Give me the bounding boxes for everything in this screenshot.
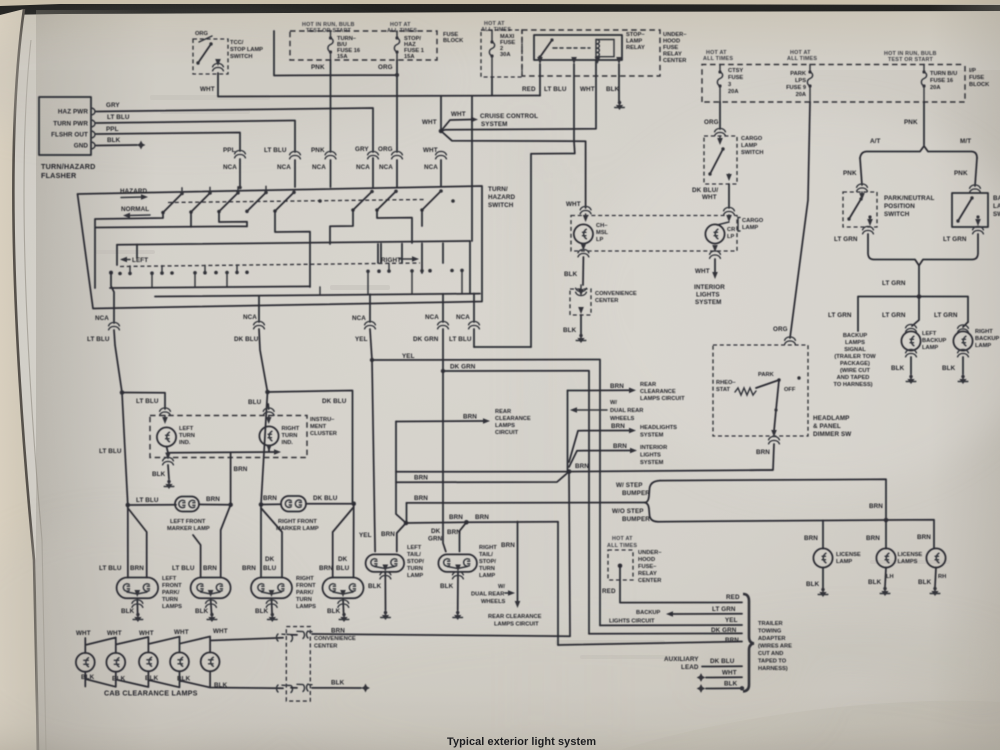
svg-text:BA: BA — [993, 195, 1000, 202]
svg-text:RIGHT: RIGHT — [282, 426, 300, 432]
svg-text:CIRCUIT: CIRCUIT — [495, 430, 519, 436]
svg-text:I/P: I/P — [969, 68, 976, 74]
svg-text:RH: RH — [938, 574, 946, 580]
svg-text:LAMPS CIRCUIT: LAMPS CIRCUIT — [494, 622, 539, 628]
svg-text:BLK: BLK — [327, 608, 341, 615]
svg-text:FUSE 9: FUSE 9 — [786, 85, 806, 91]
svg-text:LT BLU: LT BLU — [87, 336, 110, 343]
svg-text:15A: 15A — [404, 54, 414, 60]
svg-text:RIGHT: RIGHT — [381, 257, 401, 264]
svg-text:LT GRN: LT GRN — [943, 236, 967, 243]
svg-text:WHT: WHT — [213, 628, 228, 635]
svg-text:LT BLU: LT BLU — [136, 497, 159, 504]
svg-text:BLK: BLK — [606, 86, 620, 93]
svg-text:FUSE: FUSE — [728, 75, 743, 81]
svg-text:TURN: TURN — [479, 566, 495, 572]
svg-text:LAMP: LAMP — [626, 39, 642, 45]
svg-text:NCA: NCA — [312, 164, 326, 171]
svg-text:TRAILER: TRAILER — [758, 621, 783, 627]
svg-text:CRUISE CONTROL: CRUISE CONTROL — [480, 113, 538, 120]
svg-text:TAIL/: TAIL/ — [407, 552, 421, 558]
svg-text:YEL: YEL — [402, 353, 415, 360]
svg-text:20A: 20A — [930, 85, 940, 91]
svg-text:WHT: WHT — [76, 630, 91, 637]
svg-text:PARK/: PARK/ — [162, 590, 180, 596]
svg-text:BRN: BRN — [203, 565, 217, 572]
svg-text:FRONT: FRONT — [162, 583, 182, 589]
svg-text:LAMP: LAMP — [975, 343, 991, 349]
svg-text:DK: DK — [338, 556, 348, 563]
svg-text:M/T: M/T — [960, 138, 971, 145]
svg-text:FLSHR OUT: FLSHR OUT — [51, 132, 88, 139]
svg-text:LAMPS: LAMPS — [495, 423, 515, 429]
svg-text:PNK: PNK — [904, 119, 918, 126]
svg-text:LEFT: LEFT — [162, 576, 177, 582]
svg-text:STAT: STAT — [716, 387, 731, 393]
svg-text:BRN: BRN — [725, 637, 739, 644]
svg-text:Typical exterior light system: Typical exterior light system — [447, 736, 596, 748]
svg-text:LICENSE: LICENSE — [898, 552, 923, 558]
svg-text:BLK: BLK — [724, 681, 738, 688]
svg-text:LT BLU: LT BLU — [99, 448, 122, 455]
svg-text:AND TAPED: AND TAPED — [837, 375, 870, 381]
svg-text:HARNESS): HARNESS) — [758, 666, 788, 672]
svg-text:LT GRN: LT GRN — [882, 312, 906, 319]
svg-text:NCA: NCA — [277, 164, 291, 171]
svg-text:WHT: WHT — [423, 147, 438, 154]
svg-text:OFF: OFF — [784, 387, 796, 393]
svg-text:CLEARANCE: CLEARANCE — [495, 416, 531, 422]
svg-text:HAZARD: HAZARD — [488, 194, 516, 201]
svg-text:WHEELS: WHEELS — [481, 599, 506, 605]
svg-text:DK: DK — [265, 556, 275, 563]
svg-text:WHT: WHT — [580, 86, 595, 93]
svg-text:LAMPS: LAMPS — [296, 604, 316, 610]
svg-text:STOP/: STOP/ — [407, 559, 424, 565]
svg-text:RIGHT FRONT: RIGHT FRONT — [278, 519, 317, 525]
svg-text:BLOCK: BLOCK — [969, 82, 990, 88]
svg-text:15A: 15A — [337, 54, 347, 60]
svg-text:NCA: NCA — [379, 164, 393, 171]
svg-text:DK GRN: DK GRN — [450, 364, 476, 371]
svg-text:SYSTEM: SYSTEM — [640, 460, 664, 466]
svg-text:LT BLU: LT BLU — [264, 147, 287, 154]
svg-text:CUT AND: CUT AND — [758, 651, 783, 657]
svg-text:NCA: NCA — [352, 315, 366, 322]
svg-text:BRN: BRN — [613, 443, 627, 450]
svg-text:WHT: WHT — [702, 194, 717, 201]
svg-text:BRN: BRN — [414, 475, 428, 482]
svg-text:LH: LH — [886, 574, 894, 580]
svg-text:HOOD: HOOD — [638, 557, 655, 563]
svg-text:PARK: PARK — [790, 71, 807, 77]
svg-text:LEFT: LEFT — [922, 331, 937, 337]
svg-text:TEST OR START: TEST OR START — [888, 57, 934, 63]
svg-text:LAMPS: LAMPS — [162, 604, 182, 610]
svg-text:BACKUP: BACKUP — [843, 333, 868, 339]
svg-text:BRN: BRN — [463, 414, 477, 421]
svg-text:LAMP: LAMP — [741, 143, 757, 149]
svg-text:W/ STEP: W/ STEP — [616, 482, 643, 489]
svg-text:SWITCH: SWITCH — [741, 150, 763, 156]
svg-text:BRN: BRN — [381, 531, 395, 538]
svg-text:REAR: REAR — [640, 382, 656, 388]
svg-text:CARGO: CARGO — [741, 136, 763, 142]
svg-text:BLK: BLK — [891, 365, 905, 372]
svg-text:RIGHT: RIGHT — [975, 329, 993, 335]
svg-text:LAMPS: LAMPS — [845, 340, 865, 346]
svg-text:PNK: PNK — [954, 170, 968, 177]
svg-text:RED: RED — [522, 86, 536, 93]
svg-text:TURN: TURN — [296, 597, 312, 603]
svg-text:BRN: BRN — [130, 565, 144, 572]
svg-text:20A: 20A — [728, 89, 738, 95]
svg-text:WHT: WHT — [695, 268, 710, 275]
svg-text:W/O STEP: W/O STEP — [612, 508, 644, 515]
svg-text:BLK: BLK — [942, 365, 956, 372]
svg-text:BRN: BRN — [242, 565, 256, 572]
svg-text:ORG: ORG — [378, 146, 393, 153]
svg-text:FUSE 16: FUSE 16 — [930, 78, 953, 84]
svg-text:BLK: BLK — [564, 271, 578, 278]
svg-text:SWITCH: SWITCH — [488, 202, 514, 209]
svg-text:LAMP: LAMP — [479, 573, 495, 579]
svg-text:BRN: BRN — [866, 535, 880, 542]
svg-text:BLK: BLK — [152, 471, 166, 478]
svg-text:HEADLAMP: HEADLAMP — [813, 415, 849, 422]
svg-text:NCA: NCA — [424, 164, 438, 171]
svg-text:W/: W/ — [498, 584, 505, 590]
svg-text:RHEO–: RHEO– — [716, 380, 736, 386]
svg-text:BUMPER: BUMPER — [622, 516, 650, 523]
svg-text:NORMAL: NORMAL — [121, 206, 149, 213]
svg-text:WHT: WHT — [107, 630, 122, 637]
svg-text:LT BLU: LT BLU — [172, 565, 195, 572]
svg-text:RIGHT: RIGHT — [296, 576, 314, 582]
svg-text:DK BLU: DK BLU — [313, 495, 338, 502]
svg-text:SWITCH: SWITCH — [230, 54, 252, 60]
svg-text:PNK: PNK — [843, 170, 857, 177]
svg-text:LT BLU: LT BLU — [136, 398, 159, 405]
svg-text:DK BLU: DK BLU — [322, 398, 347, 405]
svg-text:BLU: BLU — [336, 565, 350, 572]
svg-text:CONVENIENCE: CONVENIENCE — [595, 291, 637, 297]
svg-text:BLK: BLK — [255, 608, 269, 615]
svg-text:20A: 20A — [796, 92, 806, 98]
svg-text:30A: 30A — [500, 52, 510, 58]
svg-text:GRN: GRN — [428, 536, 443, 543]
svg-text:MARKER LAMP: MARKER LAMP — [167, 526, 210, 532]
svg-text:TURN PWR: TURN PWR — [53, 121, 88, 128]
svg-text:LT GRN: LT GRN — [882, 280, 906, 287]
svg-text:RED: RED — [602, 588, 616, 595]
svg-text:& PANEL: & PANEL — [813, 423, 841, 430]
svg-text:LIGHTS: LIGHTS — [640, 453, 661, 459]
svg-text:IND.: IND. — [282, 440, 294, 446]
svg-text:TOWING: TOWING — [758, 629, 782, 635]
svg-text:LEFT: LEFT — [179, 426, 194, 432]
svg-text:LP: LP — [596, 237, 603, 243]
svg-text:ORG: ORG — [195, 31, 209, 37]
svg-text:NCA: NCA — [425, 314, 439, 321]
svg-text:BACKUP: BACKUP — [975, 336, 1000, 342]
svg-text:LAMP: LAMP — [407, 573, 423, 579]
svg-text:LICENSE: LICENSE — [836, 552, 861, 558]
svg-text:BRN: BRN — [804, 535, 818, 542]
svg-text:LT BLU: LT BLU — [99, 565, 122, 572]
svg-text:LIGHTS CIRCUIT: LIGHTS CIRCUIT — [609, 619, 655, 625]
svg-text:W/: W/ — [610, 400, 617, 406]
svg-text:PPL: PPL — [106, 126, 119, 133]
svg-text:NCA: NCA — [95, 315, 109, 322]
svg-text:ORG: ORG — [773, 326, 788, 333]
svg-text:LT BLU: LT BLU — [544, 86, 567, 93]
svg-text:ALL TIMES: ALL TIMES — [607, 543, 637, 549]
svg-text:DUAL REAR: DUAL REAR — [610, 408, 643, 414]
svg-text:WHEELS: WHEELS — [610, 416, 635, 422]
svg-text:UNDER–: UNDER– — [663, 32, 686, 38]
svg-text:ALL TIMES: ALL TIMES — [787, 56, 817, 62]
svg-text:CENTER: CENTER — [638, 578, 661, 584]
svg-text:WHT: WHT — [451, 111, 466, 118]
svg-text:REAR CLEARANCE: REAR CLEARANCE — [488, 614, 542, 620]
svg-text:NCA: NCA — [356, 164, 370, 171]
svg-text:LEFT FRONT: LEFT FRONT — [170, 519, 206, 525]
svg-text:FUSE: FUSE — [969, 75, 984, 81]
svg-text:BRN: BRN — [917, 534, 931, 541]
svg-text:SW: SW — [993, 211, 1000, 218]
svg-text:RED: RED — [726, 594, 740, 601]
svg-text:BACKUP: BACKUP — [636, 610, 661, 616]
svg-text:GRY: GRY — [106, 102, 120, 109]
svg-text:LT GRN: LT GRN — [712, 606, 736, 613]
svg-text:BRN: BRN — [611, 423, 625, 430]
svg-text:BRN: BRN — [414, 495, 428, 502]
svg-text:BLK: BLK — [440, 583, 454, 590]
svg-text:REAR: REAR — [495, 409, 511, 415]
svg-text:PARK: PARK — [758, 372, 775, 378]
svg-text:SYSTEM: SYSTEM — [640, 433, 664, 439]
svg-text:DK: DK — [431, 528, 441, 535]
svg-text:LAMP: LAMP — [836, 559, 852, 565]
svg-text:TAIL/: TAIL/ — [479, 552, 493, 558]
svg-text:WHT: WHT — [200, 86, 215, 93]
svg-text:BRN: BRN — [869, 503, 883, 510]
svg-text:BLK: BLK — [563, 327, 577, 334]
svg-text:TURN: TURN — [282, 433, 298, 439]
svg-text:BLK: BLK — [195, 608, 209, 615]
svg-text:BLK: BLK — [806, 581, 820, 588]
svg-text:TCC/: TCC/ — [230, 40, 244, 46]
svg-text:YEL: YEL — [725, 617, 738, 624]
svg-text:STOP LAMP: STOP LAMP — [230, 47, 263, 53]
svg-text:HAZ PWR: HAZ PWR — [58, 109, 88, 116]
svg-text:PNK: PNK — [311, 147, 325, 154]
svg-text:HEADLIGHTS: HEADLIGHTS — [640, 425, 677, 431]
svg-text:BLK: BLK — [918, 579, 932, 586]
svg-text:PACKAGE): PACKAGE) — [840, 361, 870, 367]
svg-text:(WIRE CUT: (WIRE CUT — [840, 368, 871, 374]
svg-text:INTERIOR: INTERIOR — [694, 284, 725, 291]
svg-text:DK GRN: DK GRN — [413, 336, 439, 343]
svg-text:YEL: YEL — [355, 336, 368, 343]
svg-text:WHT: WHT — [566, 201, 581, 208]
svg-text:BRN: BRN — [206, 496, 220, 503]
svg-text:(WIRES ARE: (WIRES ARE — [758, 644, 792, 650]
svg-text:CTSY: CTSY — [728, 68, 743, 74]
svg-text:BRN: BRN — [610, 383, 624, 390]
svg-text:BRN: BRN — [501, 542, 515, 549]
svg-text:FLASHER: FLASHER — [41, 171, 77, 180]
svg-text:DK BLU/: DK BLU/ — [692, 187, 718, 194]
svg-text:LPS: LPS — [795, 78, 806, 84]
svg-text:HAZARD: HAZARD — [120, 188, 148, 195]
svg-text:PPL: PPL — [223, 147, 236, 154]
svg-text:TURN/HAZARD: TURN/HAZARD — [41, 162, 96, 171]
svg-text:3: 3 — [728, 82, 731, 88]
svg-text:LAMPS: LAMPS — [898, 559, 918, 565]
svg-text:BLK: BLK — [331, 680, 345, 687]
svg-text:IND.: IND. — [179, 440, 191, 446]
svg-text:BLK: BLK — [868, 579, 882, 586]
svg-text:BLOCK: BLOCK — [443, 38, 464, 44]
svg-text:INTERIOR: INTERIOR — [640, 445, 667, 451]
svg-text:RELAY: RELAY — [663, 52, 682, 58]
svg-text:BRN: BRN — [234, 466, 248, 473]
svg-text:TURN B/U: TURN B/U — [930, 71, 957, 77]
svg-text:TURN/: TURN/ — [488, 186, 508, 193]
svg-text:DK BLU: DK BLU — [710, 658, 735, 665]
svg-text:(TRAILER TOW: (TRAILER TOW — [834, 354, 876, 360]
svg-text:BLU: BLU — [263, 565, 277, 572]
svg-text:LAMPS CIRCUIT: LAMPS CIRCUIT — [640, 396, 685, 402]
svg-text:LT GRN: LT GRN — [934, 312, 958, 319]
svg-text:BLK: BLK — [107, 137, 121, 144]
svg-text:A/T: A/T — [870, 138, 880, 145]
svg-text:LAMP: LAMP — [742, 225, 758, 231]
svg-text:TAPED TO: TAPED TO — [758, 659, 787, 665]
svg-text:GND: GND — [74, 143, 89, 150]
svg-text:CENTER: CENTER — [314, 644, 337, 650]
svg-text:CLEARANCE: CLEARANCE — [640, 389, 676, 395]
svg-text:LT BLU: LT BLU — [449, 336, 472, 343]
svg-text:SIGNAL: SIGNAL — [844, 347, 866, 353]
svg-text:BRN: BRN — [756, 449, 770, 456]
svg-text:TO HARNESS): TO HARNESS) — [833, 382, 872, 388]
svg-text:BRN: BRN — [575, 463, 589, 470]
svg-text:SYSTEM: SYSTEM — [695, 299, 722, 306]
svg-text:MENT: MENT — [310, 424, 327, 430]
svg-text:CH–: CH– — [596, 223, 607, 229]
svg-text:RELAY: RELAY — [638, 571, 657, 577]
svg-text:STOP–: STOP– — [626, 32, 645, 38]
svg-text:FUSE: FUSE — [663, 45, 678, 51]
svg-text:LEFT: LEFT — [407, 545, 422, 551]
svg-text:LA: LA — [993, 203, 1000, 210]
svg-text:WHT: WHT — [174, 629, 189, 636]
svg-text:BLK: BLK — [368, 583, 382, 590]
svg-text:CENTER: CENTER — [663, 58, 686, 64]
svg-text:BACKUP: BACKUP — [922, 338, 947, 344]
svg-text:CAB CLEARANCE LAMPS: CAB CLEARANCE LAMPS — [104, 689, 198, 698]
svg-text:DIMMER SW: DIMMER SW — [813, 431, 851, 438]
svg-text:GRY: GRY — [355, 146, 369, 153]
svg-text:TURN: TURN — [407, 566, 423, 572]
svg-text:ADAPTER: ADAPTER — [758, 636, 786, 642]
svg-text:SYSTEM: SYSTEM — [481, 121, 508, 128]
svg-text:RELAY: RELAY — [626, 45, 645, 51]
svg-text:WHT: WHT — [422, 119, 437, 126]
svg-text:FRONT: FRONT — [296, 583, 316, 589]
svg-text:MSL: MSL — [596, 230, 609, 236]
svg-text:LEFT: LEFT — [132, 257, 148, 264]
svg-text:BRN: BRN — [263, 495, 277, 502]
svg-text:TURN: TURN — [179, 433, 195, 439]
svg-text:LT GRN: LT GRN — [828, 312, 852, 319]
svg-text:CARGO: CARGO — [742, 218, 764, 224]
svg-text:YEL: YEL — [359, 532, 372, 539]
svg-text:WHT: WHT — [722, 670, 737, 677]
svg-text:LEAD: LEAD — [681, 664, 699, 671]
svg-text:AUXILIARY: AUXILIARY — [664, 656, 699, 663]
svg-text:WHT: WHT — [139, 630, 154, 637]
svg-text:ORG: ORG — [378, 64, 393, 71]
svg-text:LP: LP — [727, 234, 734, 240]
svg-text:PARK/NEUTRAL: PARK/NEUTRAL — [884, 195, 934, 202]
svg-text:INSTRU–: INSTRU– — [310, 417, 334, 423]
svg-text:DUAL REAR: DUAL REAR — [471, 592, 504, 598]
svg-text:BLU: BLU — [248, 399, 262, 406]
svg-text:CR: CR — [727, 227, 735, 233]
svg-text:LT GRN: LT GRN — [834, 236, 858, 243]
svg-text:CLUSTER: CLUSTER — [310, 431, 337, 437]
svg-text:TURN: TURN — [162, 597, 178, 603]
svg-text:BUMPER: BUMPER — [622, 490, 650, 497]
svg-text:POSITION: POSITION — [884, 203, 915, 210]
svg-text:ORG: ORG — [704, 119, 719, 126]
svg-text:SWITCH: SWITCH — [884, 211, 910, 218]
svg-text:ALL TIMES: ALL TIMES — [703, 56, 733, 62]
svg-text:UNDER–: UNDER– — [638, 550, 661, 556]
svg-text:BRN: BRN — [475, 514, 489, 521]
svg-text:CONVENIENCE: CONVENIENCE — [314, 636, 356, 642]
svg-text:NCA: NCA — [456, 314, 470, 321]
svg-text:BRN: BRN — [449, 514, 463, 521]
svg-text:MARKER LAMP: MARKER LAMP — [276, 526, 319, 532]
svg-text:HOOD: HOOD — [663, 39, 680, 45]
svg-text:LT BLU: LT BLU — [107, 114, 130, 121]
svg-text:NCA: NCA — [223, 164, 237, 171]
svg-text:BRN: BRN — [319, 565, 333, 572]
svg-text:NCA: NCA — [243, 314, 257, 321]
svg-text:CENTER: CENTER — [595, 298, 618, 304]
svg-text:PARK/: PARK/ — [296, 590, 314, 596]
svg-text:BLK: BLK — [121, 608, 135, 615]
svg-text:DK BLU: DK BLU — [234, 336, 259, 343]
svg-text:HOT AT: HOT AT — [612, 536, 633, 542]
svg-text:PNK: PNK — [311, 64, 325, 71]
svg-text:FUSE–: FUSE– — [638, 564, 656, 570]
svg-text:STOP/: STOP/ — [479, 559, 496, 565]
svg-text:LAMP: LAMP — [922, 345, 938, 351]
svg-text:RIGHT: RIGHT — [479, 545, 497, 551]
svg-text:LIGHTS: LIGHTS — [696, 292, 720, 299]
